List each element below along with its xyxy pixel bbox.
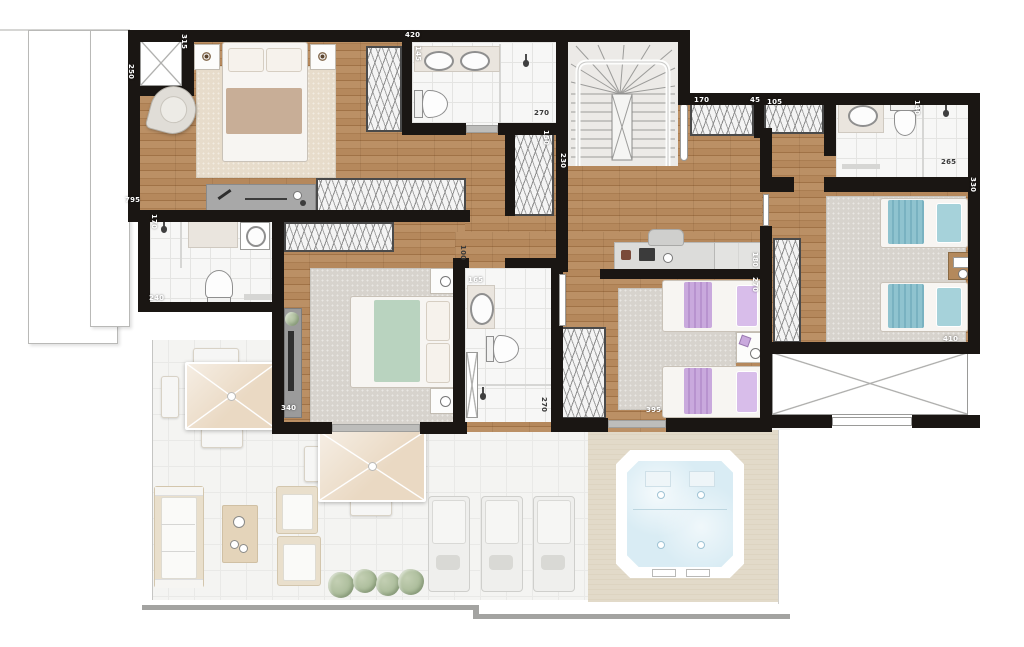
pillow — [936, 203, 962, 243]
decor-bar — [245, 198, 287, 200]
staircase — [568, 42, 678, 166]
bath-mat — [244, 294, 272, 300]
cushion-seam — [161, 524, 195, 525]
jet-panel — [689, 471, 715, 487]
shower-icon — [940, 104, 952, 118]
wardrobe-closet — [316, 178, 466, 212]
sink-icon — [424, 51, 454, 71]
pillow — [426, 343, 450, 383]
wardrobe-closet — [366, 46, 402, 132]
wall — [128, 30, 140, 222]
jacuzzi-control — [686, 569, 710, 577]
armchair-cushion — [282, 494, 313, 530]
dim-label: 395 — [646, 407, 661, 414]
outdoor-chair — [201, 428, 243, 448]
outdoor-chair — [161, 376, 179, 418]
shower-icon — [520, 54, 532, 68]
wall — [560, 418, 608, 432]
pillow — [228, 48, 264, 72]
wall — [138, 302, 284, 312]
elevator — [140, 40, 182, 86]
parasol-table — [185, 362, 277, 430]
knob-icon — [293, 191, 302, 200]
dim-label: 420 — [405, 32, 420, 39]
door-threshold — [332, 424, 420, 432]
shower-icon — [158, 220, 170, 234]
wall — [556, 218, 568, 272]
void-area — [772, 352, 968, 415]
decor-icon — [239, 544, 248, 553]
wardrobe-closet — [773, 238, 801, 343]
armchair-cushion — [157, 93, 190, 126]
lamp-icon — [318, 52, 327, 61]
parasol-table — [318, 430, 426, 502]
jacuzzi-control — [652, 569, 676, 577]
decor-icon — [233, 516, 245, 528]
terrace-edge — [142, 336, 153, 618]
wall — [453, 258, 465, 432]
guardrail — [832, 417, 912, 426]
dim-label: 230 — [559, 153, 566, 168]
dim-label: 795 — [125, 197, 140, 204]
blanket — [888, 200, 924, 244]
wall — [968, 100, 980, 354]
door-threshold — [608, 420, 666, 428]
dim-label: 150 — [542, 130, 549, 145]
dim-label: 270 — [540, 397, 547, 412]
sun-lounger — [533, 496, 575, 592]
wall — [824, 100, 836, 156]
wall — [600, 269, 762, 279]
wall — [912, 415, 980, 428]
dim-label: 315 — [180, 34, 187, 49]
wardrobe-closet — [690, 100, 754, 136]
pillow — [736, 371, 758, 413]
stair-railing — [680, 103, 688, 161]
dim-label: 410 — [943, 336, 958, 343]
vanity-counter — [188, 220, 238, 248]
pillow — [266, 48, 302, 72]
dim-label: 100 — [459, 245, 466, 260]
sun-lounger — [428, 496, 470, 592]
wall — [666, 418, 762, 432]
blanket — [684, 282, 712, 328]
dim-label: 45 — [750, 97, 760, 104]
background-sheet — [90, 30, 130, 327]
wall — [770, 342, 980, 354]
laptop-icon — [639, 248, 655, 261]
dim-label: 330 — [969, 177, 976, 192]
decor-icon — [953, 257, 969, 268]
dim-label: 250 — [127, 64, 134, 79]
dim-label: 265 — [941, 159, 956, 166]
dim-label: 145 — [414, 46, 421, 61]
dim-label: 270 — [751, 277, 758, 292]
pillow — [936, 287, 962, 327]
wall — [272, 210, 284, 432]
decor-icon — [958, 269, 968, 279]
wall — [760, 226, 772, 432]
desk — [614, 242, 716, 270]
sofa-cushion — [161, 497, 197, 579]
jacuzzi — [616, 450, 744, 578]
jacuzzi-water — [627, 461, 733, 567]
knob-icon — [300, 200, 306, 206]
bath-mat — [842, 164, 880, 169]
dim-label: 270 — [534, 110, 549, 117]
pen-icon — [217, 189, 231, 200]
blanket — [684, 368, 712, 414]
sink-icon — [460, 51, 490, 71]
tv-icon — [288, 331, 294, 391]
linen-cabinet — [466, 352, 478, 418]
blanket — [374, 300, 420, 382]
shower-divider — [180, 218, 182, 268]
cabinet-divider — [738, 243, 739, 269]
decor-icon — [663, 253, 673, 263]
sink-icon — [246, 226, 266, 247]
wall — [824, 177, 980, 192]
sink-icon — [848, 105, 878, 127]
outside-area — [688, 24, 1024, 93]
shower-divider — [922, 100, 924, 177]
parapet-line — [142, 605, 476, 610]
jet-panel — [645, 471, 671, 487]
lamp-icon — [202, 52, 211, 61]
jet-icon — [697, 491, 705, 499]
dim-label: 340 — [281, 405, 296, 412]
door-leaf — [763, 194, 769, 226]
coffee-table — [222, 505, 258, 563]
sofa-armrest — [155, 487, 203, 496]
dim-label: 240 — [149, 295, 164, 302]
sofa — [154, 486, 204, 588]
jacuzzi-seat-line — [633, 509, 727, 510]
wardrobe-closet — [560, 327, 606, 419]
decor-icon — [621, 250, 631, 260]
armchair-cushion — [283, 544, 316, 581]
wall — [505, 126, 515, 216]
dim-label: 105 — [767, 99, 782, 106]
decor-icon — [230, 540, 239, 549]
cushion-seam — [161, 551, 195, 552]
sink-icon — [470, 293, 494, 325]
wall — [272, 422, 332, 434]
dim-label: 140 — [913, 100, 920, 115]
wall — [762, 177, 794, 192]
jet-icon — [657, 541, 665, 549]
sun-lounger — [481, 496, 523, 592]
floorplan-canvas: 250 315 420 145 270 150 230 170 45 105 1… — [0, 0, 1024, 647]
deck-edge — [778, 430, 793, 604]
shower-divider — [467, 384, 551, 386]
jet-icon — [657, 491, 665, 499]
outside-area — [138, 312, 272, 340]
outdoor-armchair — [277, 536, 321, 586]
dim-label: 180 — [751, 252, 758, 267]
jet-icon — [697, 541, 705, 549]
parapet-line — [473, 614, 790, 619]
wall — [402, 36, 412, 128]
door-threshold — [466, 125, 498, 133]
desk-chair — [648, 229, 684, 246]
blanket — [888, 284, 924, 328]
sofa-armrest — [155, 579, 203, 588]
pillow — [426, 301, 450, 341]
outdoor-armchair — [276, 486, 318, 534]
dim-label: 170 — [694, 97, 709, 104]
wall — [762, 415, 832, 428]
decor-icon — [440, 276, 451, 287]
dim-label: 165 — [468, 277, 483, 284]
blanket — [226, 88, 302, 134]
wall — [402, 123, 466, 135]
shower-icon — [477, 387, 489, 401]
wall — [128, 210, 470, 222]
decor-icon — [440, 396, 451, 407]
door-leaf — [559, 274, 566, 326]
wall — [556, 36, 568, 218]
toilet — [205, 270, 233, 300]
dim-label: 170 — [150, 214, 157, 229]
wardrobe-closet — [284, 222, 394, 252]
